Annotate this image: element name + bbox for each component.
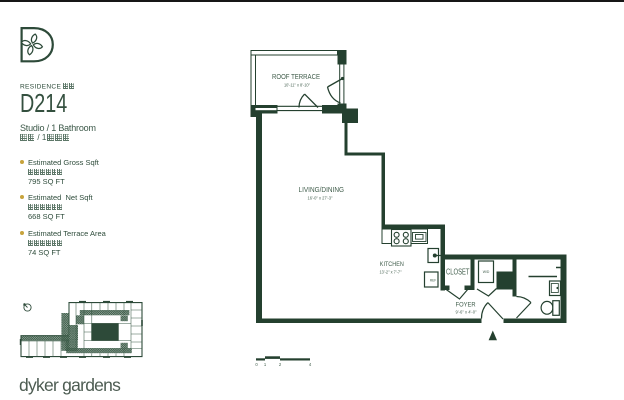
svg-text:FOYER: FOYER: [456, 302, 476, 309]
svg-text:2: 2: [279, 362, 282, 367]
svg-text:1: 1: [264, 362, 267, 367]
svg-text:16'-0" x 27'-3": 16'-0" x 27'-3": [308, 196, 333, 201]
svg-text:0: 0: [255, 362, 258, 367]
svg-text:9'-6" x 4'-0": 9'-6" x 4'-0": [456, 310, 477, 315]
svg-text:REF: REF: [430, 279, 436, 283]
svg-text:KITCHEN: KITCHEN: [380, 261, 404, 268]
svg-text:ROOF TERRACE: ROOF TERRACE: [272, 72, 320, 81]
svg-text:W/D: W/D: [483, 270, 490, 274]
svg-text:LIVING/DINING: LIVING/DINING: [299, 185, 345, 194]
svg-text:13'-2" x 7'-7": 13'-2" x 7'-7": [380, 270, 402, 275]
svg-text:4: 4: [309, 362, 312, 367]
svg-text:CLOSET: CLOSET: [446, 268, 470, 277]
svg-text:10'-11" x 8'-10": 10'-11" x 8'-10": [284, 83, 310, 88]
